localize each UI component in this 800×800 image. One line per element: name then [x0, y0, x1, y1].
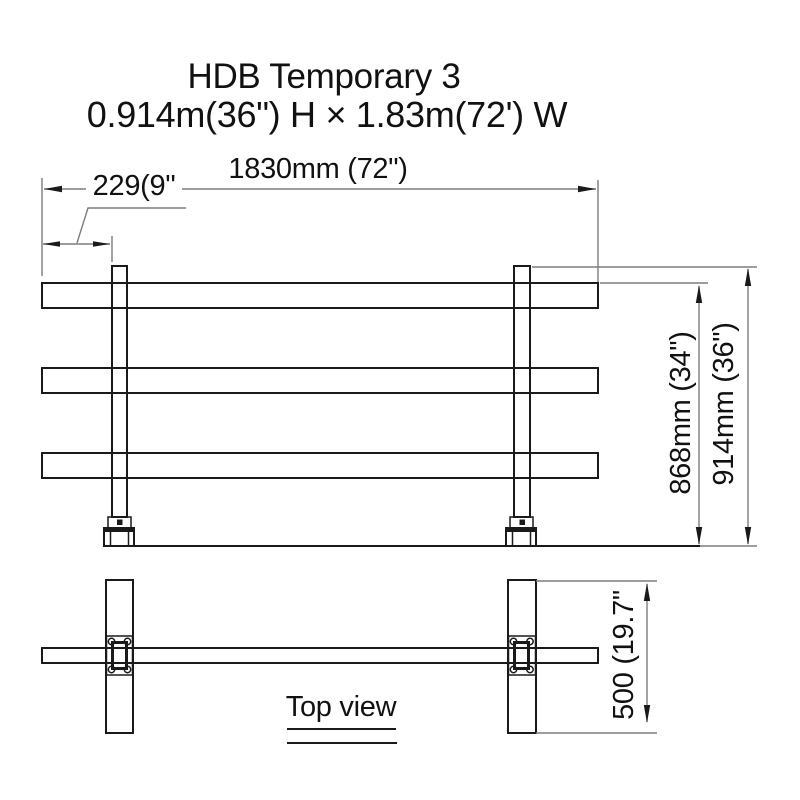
offset-dim-label: 229(9": [93, 170, 176, 202]
arrowhead-down-icon: [745, 527, 751, 545]
front-view: [42, 266, 757, 546]
arrowhead-left-icon: [44, 186, 62, 192]
front-post-right: [514, 266, 530, 517]
front-post-left: [112, 266, 127, 517]
arrowhead-right-icon: [93, 241, 110, 247]
top-view: 500 (19.7" Top view: [42, 580, 657, 743]
width-dim-label: 1830mm (72"): [228, 153, 407, 185]
top-view-plate-left: [106, 580, 133, 733]
offset-leader-line: [77, 208, 186, 243]
front-view-dimensions: 1830mm (72") 229(9" 868mm (34") 914mm (3…: [42, 153, 757, 545]
top-view-dimensions: 500 (19.7": [536, 581, 657, 733]
drawing-sheet: HDB Temporary 3 0.914m(36") H × 1.83m(72…: [0, 0, 800, 800]
post-base-left: [104, 517, 134, 546]
arrowhead-up-icon: [745, 268, 751, 286]
post-base-right: [506, 517, 536, 546]
technical-drawing: HDB Temporary 3 0.914m(36") H × 1.83m(72…: [0, 0, 800, 800]
depth-dim-label: 500 (19.7": [608, 590, 640, 720]
arrowhead-down-icon: [644, 705, 650, 723]
arrowhead-up-icon: [644, 583, 650, 601]
page-title: HDB Temporary 3: [187, 57, 460, 96]
anchor-bolt-icon: [520, 520, 526, 526]
top-view-caption: Top view: [286, 691, 398, 723]
top-view-post-section-left: [107, 636, 133, 675]
top-view-plate-right: [508, 580, 536, 733]
post-tube-section: [515, 643, 529, 669]
page-subtitle: 0.914m(36") H × 1.83m(72') W: [87, 94, 568, 135]
top-view-post-section-right: [509, 636, 536, 675]
arrowhead-up-icon: [696, 285, 702, 303]
arrowhead-down-icon: [696, 527, 702, 545]
overall-height-dim-label: 914mm (36"): [708, 322, 740, 485]
post-tube-section: [113, 643, 127, 669]
arrowhead-left-icon: [43, 241, 60, 247]
arrowhead-right-icon: [578, 186, 596, 192]
rail-height-dim-label: 868mm (34"): [665, 331, 697, 494]
anchor-bolt-icon: [117, 520, 123, 526]
